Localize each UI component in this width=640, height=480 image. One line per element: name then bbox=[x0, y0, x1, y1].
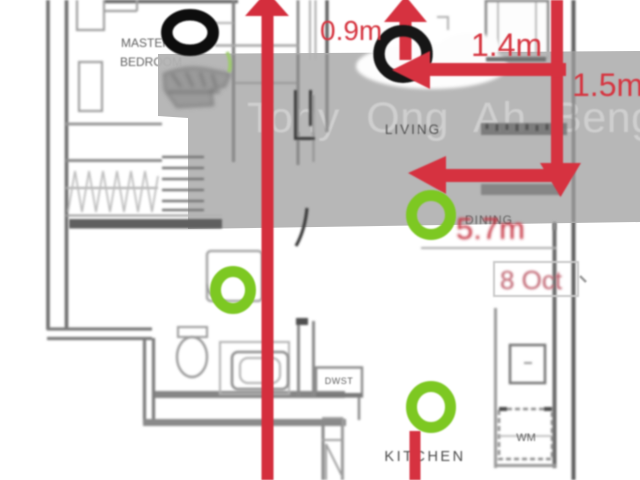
svg-text:DWST: DWST bbox=[325, 376, 354, 386]
svg-text:0.9m: 0.9m bbox=[320, 15, 382, 46]
svg-text:LIVING: LIVING bbox=[385, 122, 441, 137]
svg-text:WM: WM bbox=[516, 432, 536, 444]
svg-text:1.5m: 1.5m bbox=[572, 67, 640, 103]
svg-text:8 Oct: 8 Oct bbox=[500, 265, 563, 295]
svg-text:1.4m: 1.4m bbox=[471, 27, 542, 63]
svg-text:KITCHEN: KITCHEN bbox=[384, 449, 465, 465]
svg-text:5.7m: 5.7m bbox=[456, 211, 525, 246]
